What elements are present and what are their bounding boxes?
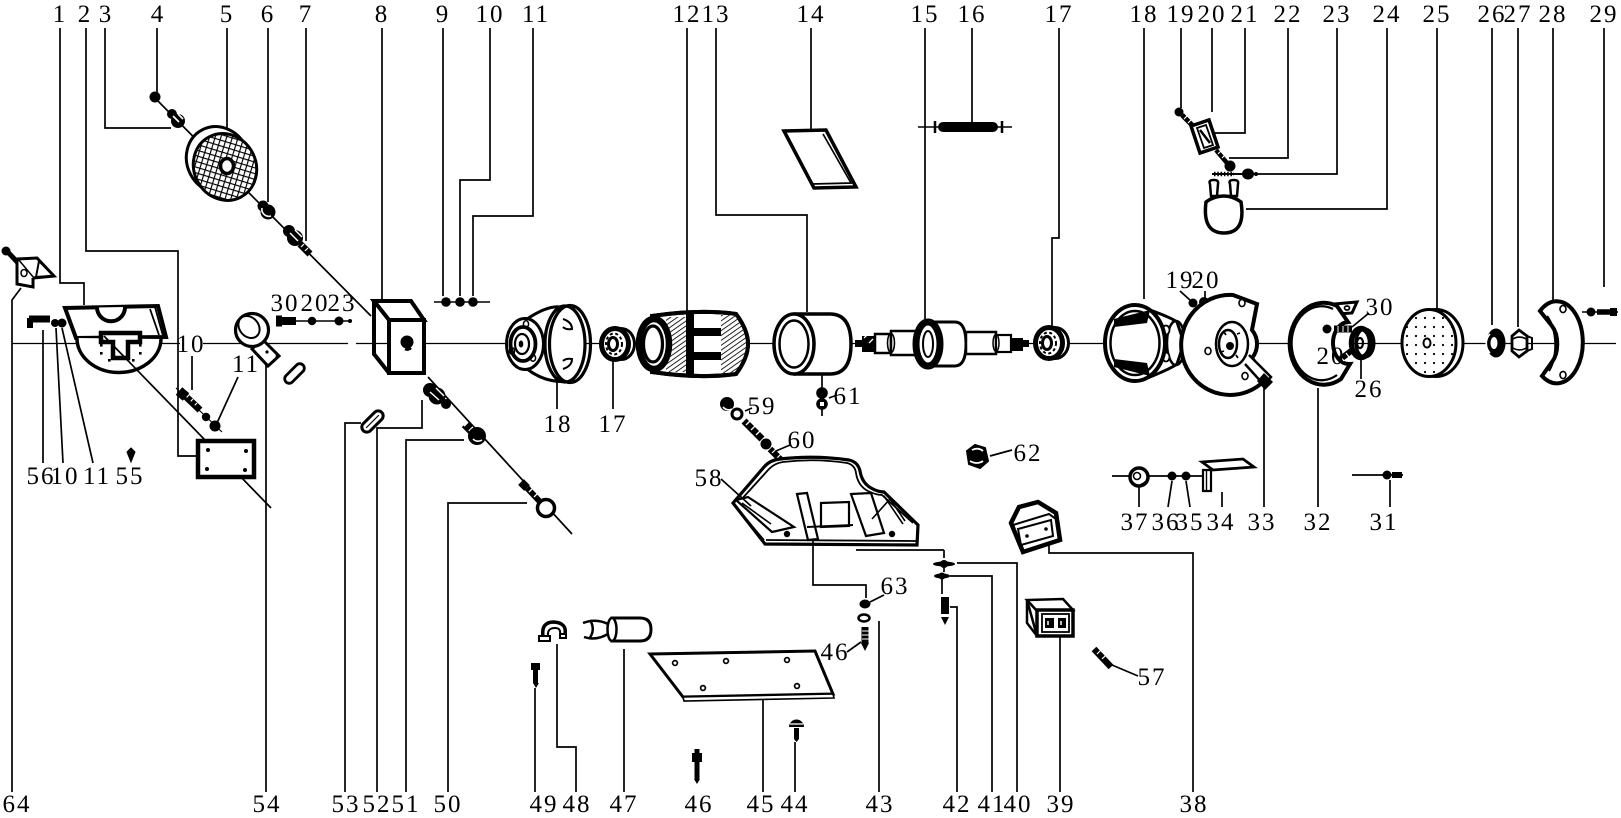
svg-text:28: 28 bbox=[1539, 1, 1568, 28]
svg-text:35: 35 bbox=[1176, 509, 1205, 536]
svg-text:37: 37 bbox=[1121, 509, 1150, 536]
svg-text:32: 32 bbox=[1304, 509, 1333, 536]
svg-text:50: 50 bbox=[434, 791, 463, 818]
svg-text:40: 40 bbox=[1004, 791, 1033, 818]
svg-text:27: 27 bbox=[1504, 1, 1533, 28]
svg-text:9: 9 bbox=[436, 1, 451, 28]
svg-text:4: 4 bbox=[151, 1, 166, 28]
svg-text:51: 51 bbox=[392, 791, 421, 818]
svg-text:11: 11 bbox=[83, 463, 111, 490]
svg-text:33: 33 bbox=[1248, 509, 1277, 536]
svg-text:7: 7 bbox=[299, 1, 314, 28]
svg-text:31: 31 bbox=[1370, 509, 1399, 536]
svg-text:52: 52 bbox=[363, 791, 392, 818]
svg-text:41: 41 bbox=[978, 791, 1007, 818]
svg-text:57: 57 bbox=[1138, 664, 1167, 691]
svg-text:23: 23 bbox=[328, 290, 357, 317]
svg-text:63: 63 bbox=[881, 573, 910, 600]
svg-text:21: 21 bbox=[1231, 1, 1260, 28]
svg-text:18: 18 bbox=[1130, 1, 1159, 28]
svg-text:11: 11 bbox=[522, 1, 550, 28]
svg-text:46: 46 bbox=[685, 791, 714, 818]
svg-text:62: 62 bbox=[1014, 440, 1043, 467]
svg-text:30: 30 bbox=[271, 290, 300, 317]
svg-text:30: 30 bbox=[1366, 294, 1395, 321]
svg-text:17: 17 bbox=[599, 411, 628, 438]
svg-text:29: 29 bbox=[1590, 1, 1619, 28]
svg-text:42: 42 bbox=[943, 791, 972, 818]
svg-text:13: 13 bbox=[702, 1, 731, 28]
svg-text:26: 26 bbox=[1478, 1, 1507, 28]
svg-text:20: 20 bbox=[1317, 343, 1346, 370]
svg-text:54: 54 bbox=[253, 791, 282, 818]
svg-text:25: 25 bbox=[1423, 1, 1452, 28]
svg-text:16: 16 bbox=[958, 1, 987, 28]
svg-text:26: 26 bbox=[1355, 376, 1384, 403]
svg-text:10: 10 bbox=[476, 1, 505, 28]
svg-text:22: 22 bbox=[1274, 1, 1303, 28]
svg-text:61: 61 bbox=[834, 383, 863, 410]
svg-text:19: 19 bbox=[1166, 267, 1195, 294]
svg-text:18: 18 bbox=[544, 411, 573, 438]
svg-text:44: 44 bbox=[781, 791, 810, 818]
svg-text:6: 6 bbox=[261, 1, 276, 28]
svg-text:23: 23 bbox=[1323, 1, 1352, 28]
svg-text:5: 5 bbox=[220, 1, 235, 28]
svg-text:39: 39 bbox=[1047, 791, 1076, 818]
svg-text:19: 19 bbox=[1167, 1, 1196, 28]
svg-text:8: 8 bbox=[375, 1, 390, 28]
svg-text:53: 53 bbox=[332, 791, 361, 818]
svg-text:64: 64 bbox=[3, 791, 32, 818]
svg-text:38: 38 bbox=[1180, 791, 1209, 818]
svg-text:59: 59 bbox=[748, 393, 777, 420]
svg-text:2: 2 bbox=[78, 1, 93, 28]
svg-text:47: 47 bbox=[610, 791, 639, 818]
svg-text:14: 14 bbox=[797, 1, 826, 28]
svg-text:20: 20 bbox=[1192, 267, 1221, 294]
svg-text:12: 12 bbox=[673, 1, 702, 28]
svg-text:34: 34 bbox=[1207, 509, 1236, 536]
svg-text:48: 48 bbox=[563, 791, 592, 818]
svg-text:17: 17 bbox=[1045, 1, 1074, 28]
svg-text:10: 10 bbox=[51, 463, 80, 490]
svg-text:24: 24 bbox=[1373, 1, 1402, 28]
svg-text:3: 3 bbox=[99, 1, 114, 28]
svg-text:20: 20 bbox=[1198, 1, 1227, 28]
svg-text:60: 60 bbox=[788, 427, 817, 454]
svg-text:58: 58 bbox=[695, 465, 724, 492]
svg-text:49: 49 bbox=[530, 791, 559, 818]
svg-text:20: 20 bbox=[301, 290, 330, 317]
svg-text:55: 55 bbox=[116, 463, 145, 490]
svg-text:46: 46 bbox=[821, 639, 850, 666]
svg-text:1: 1 bbox=[53, 1, 68, 28]
svg-text:43: 43 bbox=[866, 791, 895, 818]
svg-text:15: 15 bbox=[911, 1, 940, 28]
svg-text:10: 10 bbox=[177, 331, 206, 358]
svg-text:45: 45 bbox=[747, 791, 776, 818]
